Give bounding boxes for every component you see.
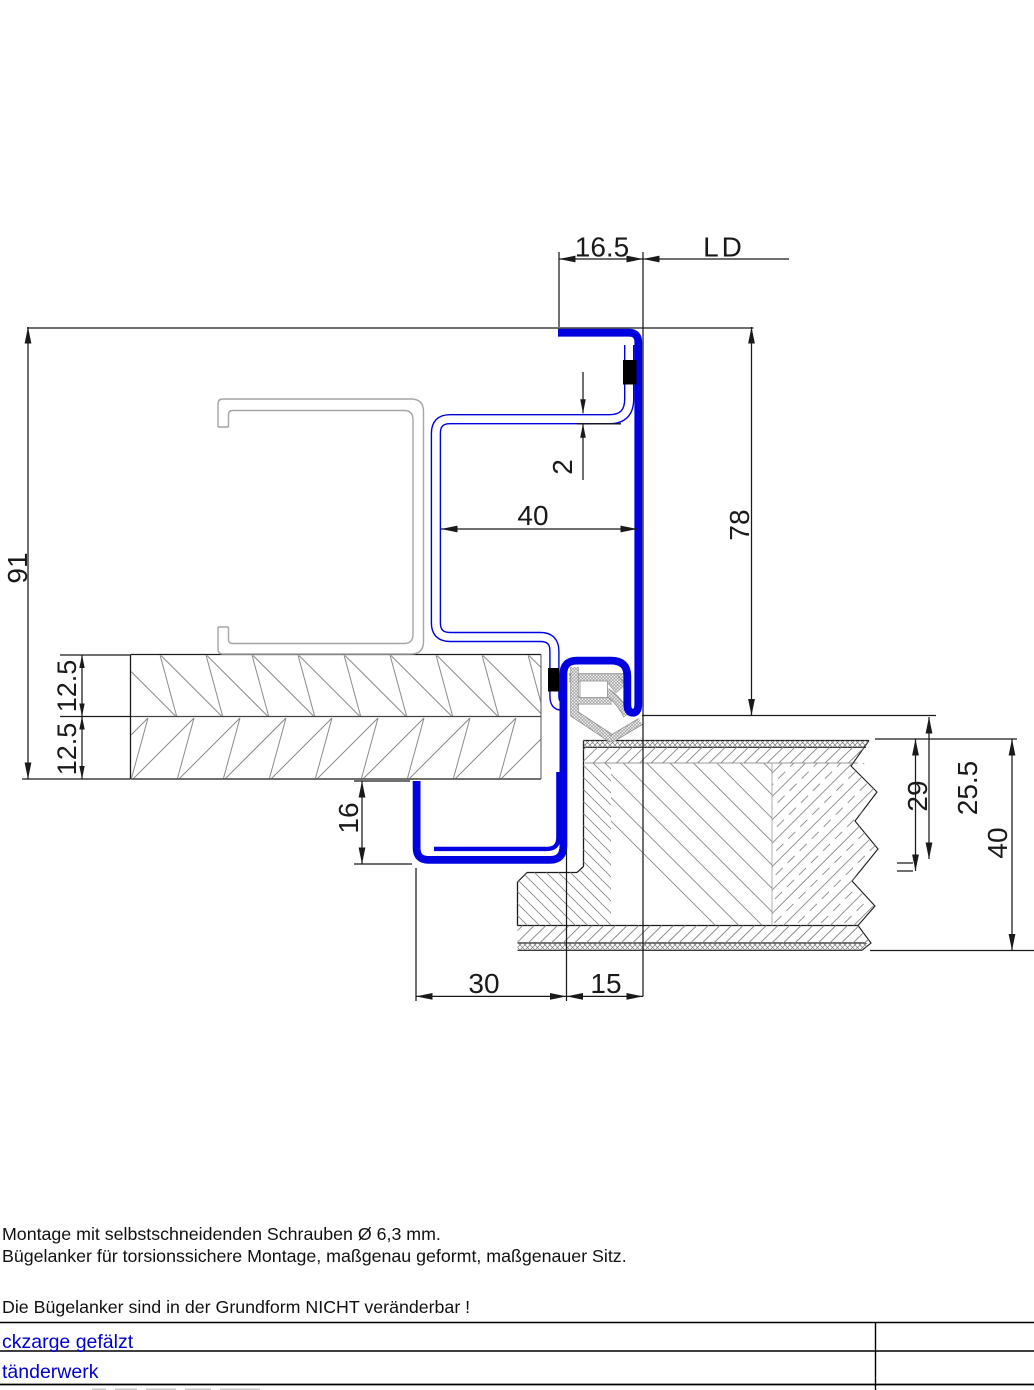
svg-text:Die Bügelanker sind in der Gru: Die Bügelanker sind in der Grundform NIC…: [2, 1297, 470, 1317]
svg-text:78: 78: [724, 509, 755, 540]
svg-text:29: 29: [902, 780, 933, 811]
svg-text:tänderwerk: tänderwerk: [2, 1361, 99, 1383]
svg-text:91: 91: [2, 552, 33, 583]
svg-text:Montage mit selbstschneidenden: Montage mit selbstschneidenden Schrauben…: [2, 1224, 441, 1244]
svg-text:16.5: 16.5: [575, 232, 630, 263]
svg-text:40: 40: [982, 827, 1013, 858]
svg-text:Bügelanker für torsionssichere: Bügelanker für torsionssichere Montage, …: [2, 1246, 627, 1266]
svg-text:40: 40: [517, 500, 548, 531]
svg-text:LD: LD: [703, 232, 745, 263]
svg-text:12.5: 12.5: [52, 723, 82, 776]
svg-text:30: 30: [468, 968, 499, 999]
svg-text:12.5: 12.5: [52, 660, 82, 713]
svg-text:25.5: 25.5: [952, 761, 983, 816]
svg-text:16: 16: [333, 802, 364, 833]
svg-text:2: 2: [547, 459, 578, 475]
svg-text:ckzarge gefälzt: ckzarge gefälzt: [2, 1331, 134, 1353]
svg-text:15: 15: [590, 968, 621, 999]
